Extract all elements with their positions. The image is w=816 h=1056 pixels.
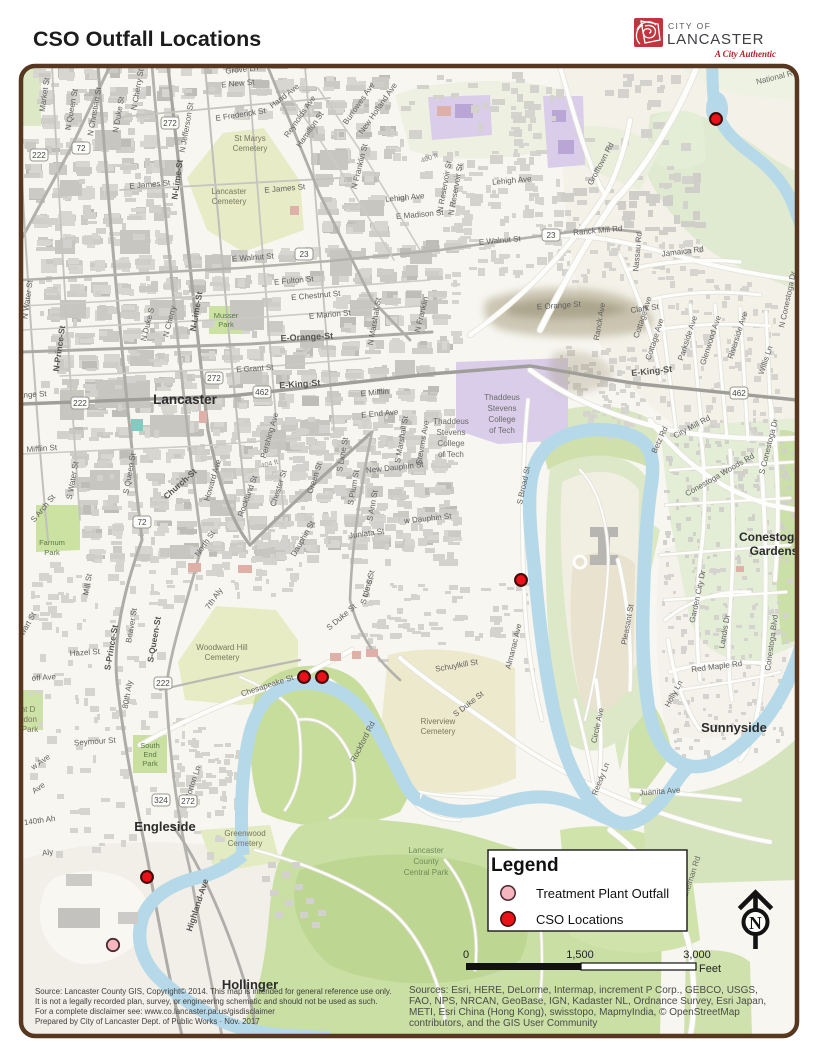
svg-text:College: College — [437, 439, 465, 448]
svg-text:South: South — [140, 741, 160, 750]
svg-text:Cemetery: Cemetery — [233, 144, 268, 153]
svg-text:1,500: 1,500 — [566, 949, 594, 961]
svg-text:Aly: Aly — [42, 847, 54, 857]
svg-text:Treatment Plant Outfall: Treatment Plant Outfall — [536, 886, 669, 901]
svg-text:Central Park: Central Park — [404, 868, 449, 877]
svg-text:CSO Locations: CSO Locations — [536, 912, 624, 927]
svg-text:Engleside: Engleside — [134, 819, 195, 834]
svg-text:Source: Lancaster County GIS,: Source: Lancaster County GIS, Copyright©… — [35, 987, 391, 996]
svg-text:End: End — [143, 750, 156, 759]
svg-text:Woodward Hill: Woodward Hill — [196, 643, 248, 652]
svg-text:off Ave: off Ave — [31, 672, 56, 683]
svg-text:222: 222 — [73, 399, 87, 408]
svg-text:Cemetery: Cemetery — [421, 727, 456, 736]
svg-text:Riverview: Riverview — [421, 717, 456, 726]
svg-text:Lancaster: Lancaster — [153, 392, 218, 407]
svg-text:Cemetery: Cemetery — [228, 839, 263, 848]
svg-text:23: 23 — [546, 231, 556, 240]
svg-text:3,000: 3,000 — [683, 949, 711, 961]
svg-text:324: 324 — [154, 796, 168, 805]
svg-text:FAO, NPS, NRCAN, GeoBase, IGN,: FAO, NPS, NRCAN, GeoBase, IGN, Kadaster … — [409, 996, 766, 1007]
svg-text:N: N — [749, 913, 762, 933]
svg-text:LANCASTER: LANCASTER — [667, 31, 764, 48]
svg-text:Musser: Musser — [214, 311, 239, 320]
svg-text:Cemetery: Cemetery — [212, 197, 247, 206]
svg-text:Park: Park — [142, 759, 158, 768]
svg-text:Farnum: Farnum — [39, 538, 65, 547]
svg-text:Conestoga: Conestoga — [739, 530, 801, 544]
svg-text:Lancaster: Lancaster — [408, 846, 443, 855]
svg-text:Greenwood: Greenwood — [224, 829, 265, 838]
svg-text:County: County — [413, 857, 438, 866]
svg-text:of Tech: of Tech — [438, 450, 464, 459]
svg-text:Park: Park — [44, 548, 60, 557]
svg-text:St Marys: St Marys — [234, 134, 266, 143]
svg-text:Park: Park — [22, 725, 39, 734]
svg-text:It is not a legally recorded p: It is not a legally recorded plan, surve… — [35, 997, 377, 1006]
svg-text:272: 272 — [207, 374, 221, 383]
svg-text:Sources: Esri, HERE, DeLorme,: Sources: Esri, HERE, DeLorme, Intermap, … — [409, 985, 758, 996]
svg-text:272: 272 — [163, 119, 177, 128]
svg-text:222: 222 — [32, 151, 46, 160]
svg-text:For a complete disclaimer see:: For a complete disclaimer see: www.co.la… — [35, 1007, 275, 1016]
svg-text:23: 23 — [299, 250, 309, 259]
svg-text:Cemetery: Cemetery — [205, 653, 240, 662]
svg-text:Prepared by City of Lancaster: Prepared by City of Lancaster Dept. of P… — [35, 1017, 260, 1026]
svg-text:Gardens: Gardens — [750, 544, 799, 558]
svg-text:462: 462 — [255, 388, 269, 397]
svg-text:METI, Esri China (Hong Kong),: METI, Esri China (Hong Kong), swisstopo,… — [409, 1007, 740, 1018]
svg-text:contributors, and the GIS User: contributors, and the GIS User Community — [409, 1018, 597, 1029]
svg-text:Thaddeus: Thaddeus — [484, 393, 520, 402]
svg-text:A City Authentic: A City Authentic — [714, 49, 776, 59]
svg-text:Park: Park — [218, 320, 234, 329]
svg-text:CSO Outfall Locations: CSO Outfall Locations — [33, 27, 261, 51]
svg-text:of Tech: of Tech — [489, 426, 515, 435]
svg-text:Stevens: Stevens — [437, 428, 466, 437]
svg-text:72: 72 — [76, 144, 86, 153]
svg-text:462: 462 — [732, 389, 746, 398]
svg-text:222: 222 — [156, 679, 170, 688]
svg-text:272: 272 — [181, 797, 195, 806]
svg-text:College: College — [488, 415, 516, 424]
svg-text:Feet: Feet — [699, 963, 721, 975]
svg-text:0: 0 — [463, 949, 469, 961]
svg-text:Sunnyside: Sunnyside — [701, 720, 767, 735]
svg-text:Legend: Legend — [491, 855, 559, 876]
svg-text:Thaddeus: Thaddeus — [433, 417, 469, 426]
svg-text:CITY OF: CITY OF — [668, 21, 711, 31]
svg-text:72: 72 — [137, 518, 147, 527]
svg-text:Lancaster: Lancaster — [211, 187, 246, 196]
svg-text:Stevens: Stevens — [488, 404, 517, 413]
